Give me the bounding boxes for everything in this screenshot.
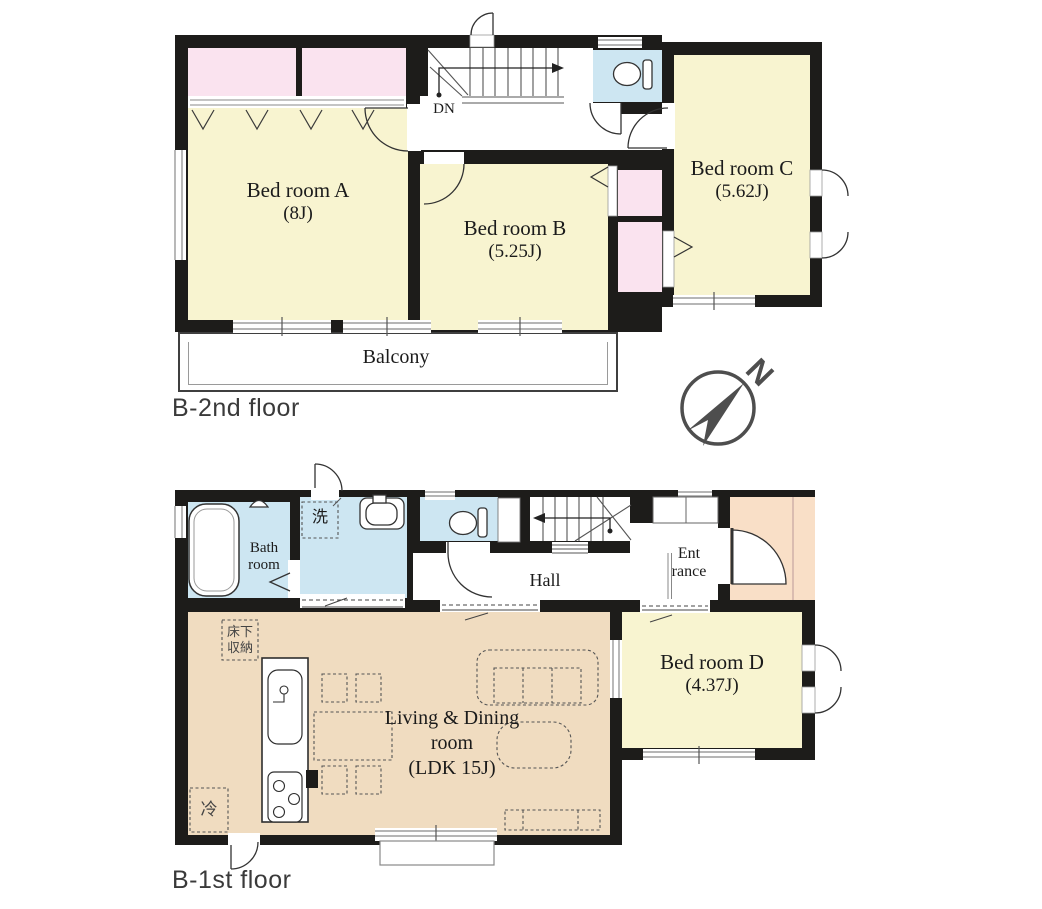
room-name: Bed room A <box>188 178 408 203</box>
ldk-label: Living & Dining room (LDK 15J) <box>300 706 604 781</box>
entrance-label: Ent rance <box>660 545 718 582</box>
compass-needle <box>687 383 744 446</box>
underfloor-storage-label: 床下 収納 <box>222 624 258 657</box>
room-name-line: Bath <box>236 540 292 557</box>
refrigerator-label: 冷 <box>190 800 228 820</box>
room-size: (LDK 15J) <box>300 756 604 781</box>
toilet-1f <box>420 497 498 541</box>
compass: N <box>682 351 781 446</box>
hall-label: Hall <box>500 570 590 592</box>
stairs-dn-label: DN <box>424 100 464 118</box>
porch <box>730 497 815 600</box>
bathroom-label: Bath room <box>236 540 292 575</box>
room-name-line: room <box>300 731 604 756</box>
closet-b-upper <box>618 170 662 216</box>
toilet-2f <box>593 50 662 102</box>
storage-label-line: 収納 <box>222 640 258 656</box>
storage-label-line: 床下 <box>222 624 258 640</box>
first-floor-title: B-1st floor <box>172 866 291 895</box>
compass-north-label: N <box>739 351 781 393</box>
room-size: (5.25J) <box>420 241 610 264</box>
room-name-line: Living & Dining <box>300 706 604 731</box>
bedroom-d-label: Bed room D (4.37J) <box>622 650 802 698</box>
room-name: Bed room B <box>420 216 610 241</box>
bedroom-c-label: Bed room C (5.62J) <box>674 156 810 204</box>
closet-b-lower <box>618 222 662 292</box>
room-name-line: rance <box>660 563 718 581</box>
bedroom-b-label: Bed room B (5.25J) <box>420 216 610 264</box>
staircase-2f <box>428 48 565 96</box>
compass-circle <box>682 372 754 444</box>
floor-plan-canvas: N <box>0 0 1042 909</box>
second-floor-title: B-2nd floor <box>172 394 300 423</box>
room-name: Bed room C <box>674 156 810 181</box>
hall-2f-right <box>593 114 662 150</box>
closet-sliding-track <box>188 96 406 108</box>
room-name-line: Ent <box>660 545 718 563</box>
bedroom-a-label: Bed room A (8J) <box>188 178 408 226</box>
room-size: (4.37J) <box>622 675 802 698</box>
closet-a1 <box>188 48 296 96</box>
laundry-label: 洗 <box>302 508 338 527</box>
closet-a2 <box>302 48 406 96</box>
staircase-1f <box>530 497 630 541</box>
room-name: Bed room D <box>622 650 802 675</box>
stair-landing-2f <box>565 48 593 150</box>
room-name-line: room <box>236 557 292 574</box>
room-size: (8J) <box>188 203 408 226</box>
room-size: (5.62J) <box>674 181 810 204</box>
balcony-label: Balcony <box>178 345 614 369</box>
